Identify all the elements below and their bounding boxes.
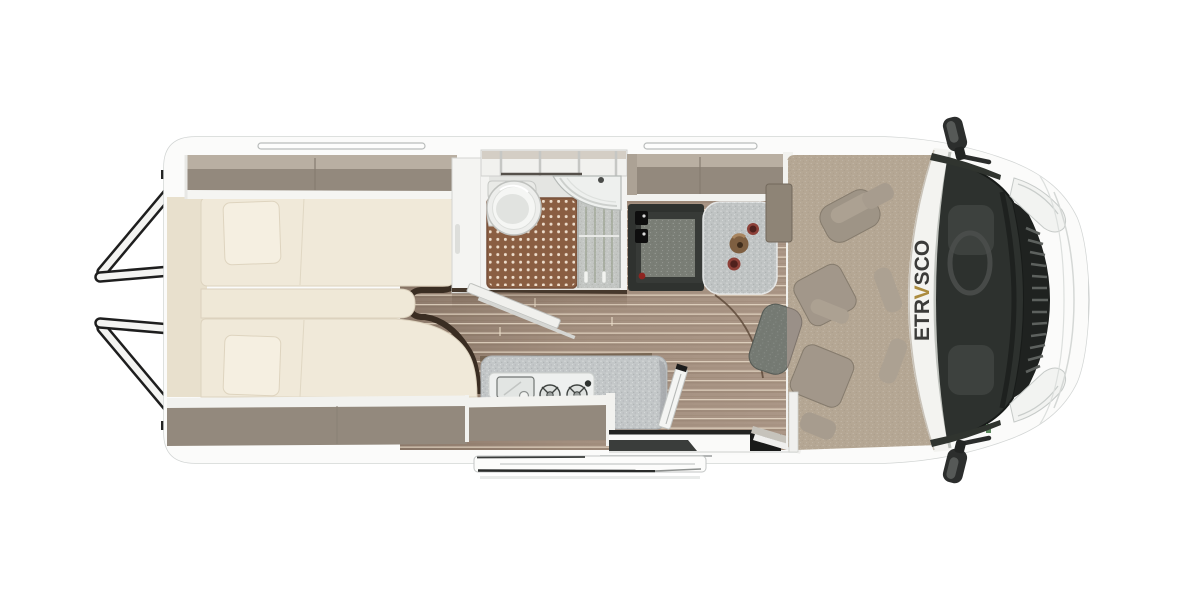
svg-text:ETRVSCO: ETRVSCO	[911, 240, 934, 341]
